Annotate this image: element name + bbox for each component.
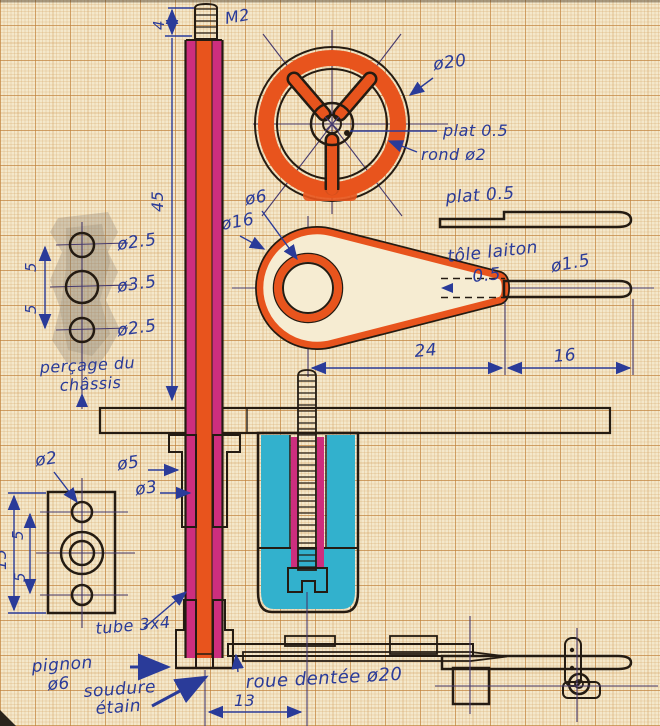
label-dia6: ø6	[242, 186, 268, 210]
tube-wall-right	[212, 40, 222, 658]
label-dim5-top: 5	[22, 262, 40, 272]
label-percage-1: perçage du	[38, 353, 135, 377]
label-roue-dentee: roue dentée ø20	[245, 664, 403, 693]
chassis-plate	[100, 408, 610, 433]
flat-bar-shape	[440, 212, 631, 227]
cam-plate-assembly: ø6 ø16 tôle laiton 0.5 ø1.5 24 16	[218, 186, 654, 377]
label-soudure-2: étain	[95, 696, 142, 719]
label-dia3: ø3	[133, 477, 159, 500]
cup-wall-right	[327, 435, 355, 550]
label-dim24: 24	[414, 340, 438, 362]
label-dia20: ø20	[431, 50, 468, 75]
label-dim5-plate-bot: 5	[11, 572, 29, 582]
technical-sketch: ø20 plat 0.5 rond ø2 plat 0.5 ø6 ø16 tôl…	[0, 0, 660, 726]
label-dia25-bot: ø2.5	[115, 316, 158, 341]
percage-arrow-up	[76, 393, 88, 407]
cup-assembly	[258, 370, 358, 612]
arrow-dia16	[240, 236, 264, 249]
label-dim45: 45	[148, 191, 167, 212]
label-rond2: rond ø2	[421, 145, 486, 164]
inner-rod	[196, 40, 212, 658]
label-dim5-plate-top: 5	[9, 530, 27, 540]
label-dia5: ø5	[115, 452, 141, 475]
arrow-dia2	[54, 472, 77, 502]
label-dia15-rod: ø1.5	[548, 250, 591, 277]
label-tube34: tube 3x4	[95, 612, 172, 637]
label-dim16: 16	[553, 345, 577, 367]
scan-edge-top	[0, 0, 660, 3]
label-dia25-top: ø2.5	[115, 230, 158, 255]
arrow-roue-dentee	[236, 655, 238, 672]
main-shaft: 4 45 M2	[148, 4, 251, 658]
label-m2: M2	[223, 5, 251, 28]
label-dia16: ø16	[218, 209, 255, 235]
label-dia2: ø2	[33, 448, 59, 471]
scan-edge-corner	[0, 710, 16, 726]
label-dim13: 13	[234, 691, 255, 710]
arrow-dia20	[410, 78, 433, 95]
label-dim4: 4	[150, 20, 168, 30]
label-dia35: ø3.5	[115, 272, 158, 297]
label-pignon-2: ø6	[46, 673, 71, 695]
brass-rod	[504, 281, 631, 297]
label-plat05-bar: plat 0.5	[444, 183, 515, 208]
label-percage-2: châssis	[59, 373, 122, 395]
arrow-soudure	[152, 677, 206, 706]
guide-tube-right	[317, 437, 324, 568]
label-plat05-wheel: plat 0.5	[442, 121, 508, 140]
pinion-plate: 15 5 5 ø2 tube 3x4	[0, 448, 186, 638]
label-tole-laiton: tôle laiton	[446, 238, 538, 267]
pencil-shading	[50, 212, 120, 368]
flat-bar: plat 0.5	[440, 183, 631, 227]
marker-smudge	[303, 190, 357, 201]
cup-wall-left	[261, 435, 290, 550]
cam-hub-ring	[278, 258, 338, 318]
hook-bracket-post	[565, 638, 581, 686]
label-dim5-bot: 5	[22, 304, 40, 314]
tube-wall-left	[186, 40, 196, 658]
flat-indicator-dot	[344, 130, 350, 136]
guide-tube-left	[291, 437, 298, 568]
graph-paper-sheet: ø20 plat 0.5 rond ø2 plat 0.5 ø6 ø16 tôl…	[0, 0, 660, 726]
label-dim15: 15	[0, 549, 10, 570]
label-tole-ep: 0.5	[471, 264, 501, 287]
